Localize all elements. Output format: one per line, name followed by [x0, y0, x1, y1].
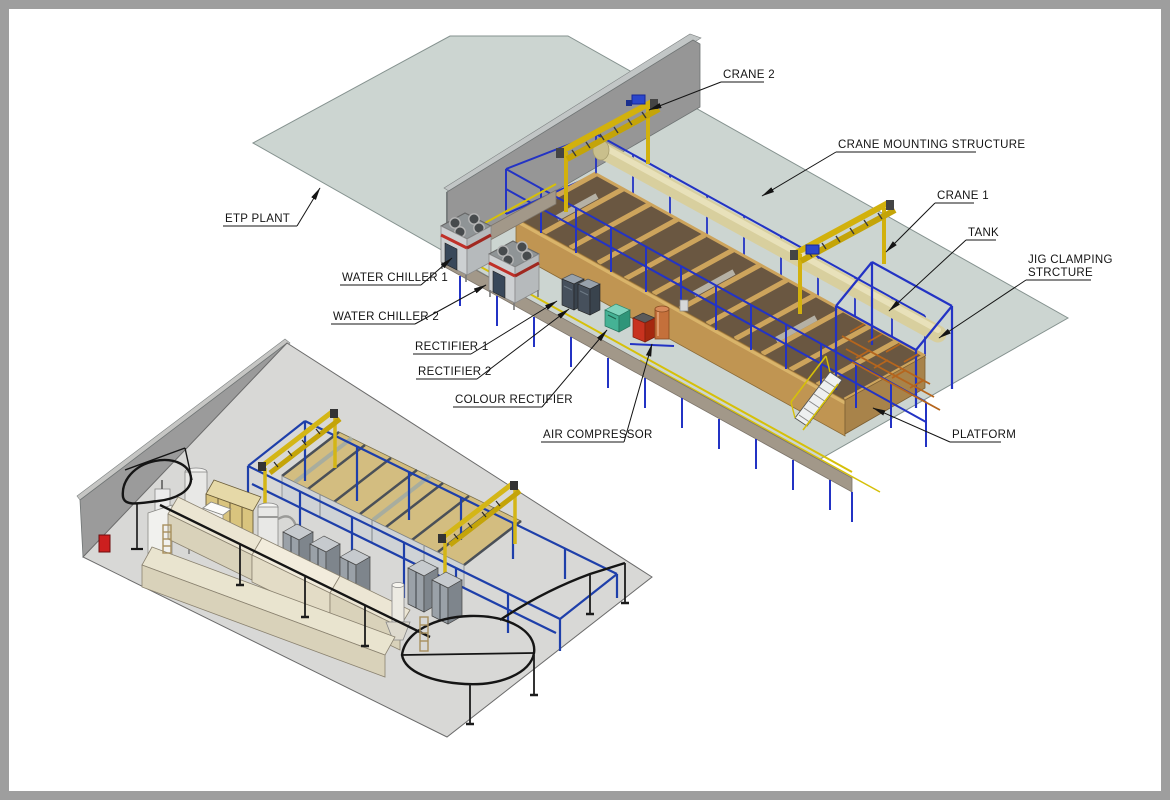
electrical-box — [99, 535, 110, 552]
label-jig-clamping-line2: STRCTURE — [1028, 267, 1093, 279]
label-tank: TANK — [968, 227, 999, 239]
plant-layout-svg: CRANE 2 CRANE MOUNTING STRUCTURE CRANE 1… — [9, 9, 1161, 791]
label-colour-rectifier: COLOUR RECTIFIER — [455, 394, 573, 406]
label-jig-clamping-line1: JIG CLAMPING — [1028, 254, 1113, 266]
colour-rectifier — [605, 304, 630, 332]
label-etp-plant: ETP PLANT — [225, 213, 290, 225]
label-air-compressor: AIR COMPRESSOR — [543, 429, 653, 441]
drawing-page: CRANE 2 CRANE MOUNTING STRUCTURE CRANE 1… — [9, 9, 1161, 791]
leader-etp-plant — [297, 188, 320, 226]
label-water-chiller-2: WATER CHILLER 2 — [333, 311, 439, 323]
label-water-chiller-1: WATER CHILLER 1 — [342, 272, 448, 284]
rectifier-2 — [578, 279, 600, 315]
small-control-box — [680, 300, 688, 311]
label-crane-1: CRANE 1 — [937, 190, 989, 202]
label-rectifier-2: RECTIFIER 2 — [418, 366, 492, 378]
label-rectifier-1: RECTIFIER 1 — [415, 341, 489, 353]
label-platform: PLATFORM — [952, 429, 1016, 441]
drawing-frame: CRANE 2 CRANE MOUNTING STRUCTURE CRANE 1… — [0, 0, 1170, 800]
label-crane-mounting-structure: CRANE MOUNTING STRUCTURE — [838, 139, 1025, 151]
label-crane-2: CRANE 2 — [723, 69, 775, 81]
